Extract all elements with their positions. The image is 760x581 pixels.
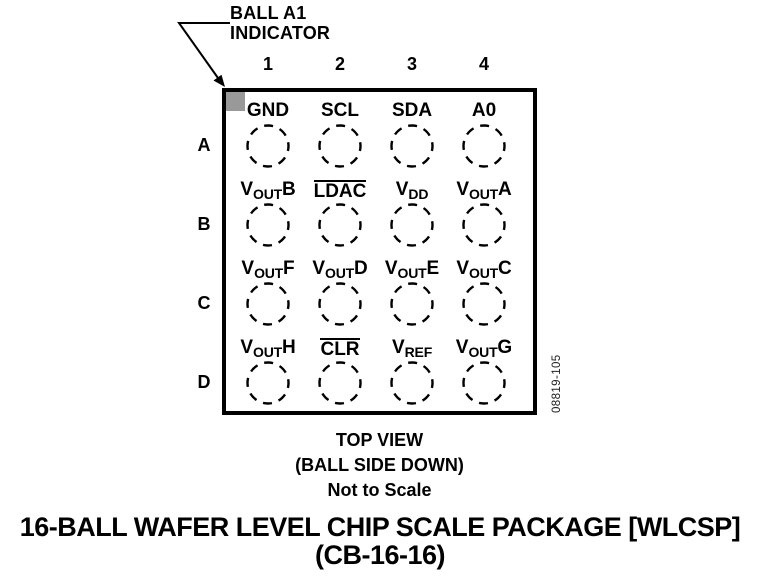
ball-cell-a2: SCL (304, 92, 376, 171)
pin-name-suffix: D (354, 258, 368, 279)
pin-label: VOUTA (456, 180, 511, 203)
overline-bar: CLR (320, 338, 359, 358)
pin-name-suffix: B (282, 179, 296, 200)
pin-label: A0 (472, 101, 496, 124)
pin-name: V (456, 179, 469, 200)
ball-cell-c2: VOUTD (304, 250, 376, 329)
pin-label: VOUTE (385, 259, 439, 282)
view-notes: TOP VIEW (BALL SIDE DOWN) Not to Scale (222, 428, 537, 503)
ball-cell-d4: VOUTG (448, 329, 520, 408)
pin-name: SCL (321, 100, 359, 121)
pin-name: V (240, 179, 253, 200)
row-label-b: B (192, 214, 216, 250)
scale-note: Not to Scale (222, 478, 537, 503)
pin-label: CLR (320, 338, 359, 361)
ball-pad-icon (462, 361, 506, 405)
ball-pad-icon (246, 203, 290, 247)
pin-label: SCL (321, 101, 359, 124)
pin-name-subscript: OUT (469, 186, 498, 202)
pin-label: VDD (396, 180, 429, 203)
ball-side-note: (BALL SIDE DOWN) (222, 453, 537, 478)
ball-cell-b4: VOUTA (448, 171, 520, 250)
pin-label: SDA (392, 101, 432, 124)
pin-name: LDAC (314, 181, 367, 202)
pin-name-subscript: OUT (398, 265, 427, 281)
ball-grid: GNDSCLSDAA0VOUTBLDACVDDVOUTAVOUTFVOUTDVO… (232, 92, 520, 408)
ball-cell-d1: VOUTH (232, 329, 304, 408)
pin-label: VOUTF (241, 259, 294, 282)
pin-name-subscript: OUT (469, 265, 498, 281)
pin-label: VOUTB (240, 180, 295, 203)
column-label-2: 2 (304, 54, 376, 75)
pin-name: V (241, 258, 254, 279)
ball-pad-icon (318, 203, 362, 247)
leader-arrow-icon (170, 14, 240, 94)
caption-line1: 16-BALL WAFER LEVEL CHIP SCALE PACKAGE [… (0, 513, 760, 541)
pin-name: V (312, 258, 325, 279)
ball-cell-b2: LDAC (304, 171, 376, 250)
overline-bar: LDAC (314, 180, 367, 200)
ball-a1-indicator-label: BALL A1 INDICATOR (230, 3, 330, 43)
pin-name-suffix: C (498, 258, 512, 279)
column-label-1: 1 (232, 54, 304, 75)
pin-label: GND (247, 101, 289, 124)
pin-name: V (396, 179, 409, 200)
ball-cell-a4: A0 (448, 92, 520, 171)
view-label: TOP VIEW (222, 428, 537, 453)
pin-label: VOUTG (456, 338, 512, 361)
pin-name: V (385, 258, 398, 279)
ball-pad-icon (246, 124, 290, 168)
ball-pad-icon (390, 282, 434, 326)
pin-name-subscript: DD (408, 186, 428, 202)
ball-pad-icon (246, 282, 290, 326)
pin-name-suffix: G (497, 337, 512, 358)
pin-name: A0 (472, 100, 496, 121)
pin-name-subscript: REF (405, 344, 432, 360)
pin-name: GND (247, 100, 289, 121)
package-outline: GNDSCLSDAA0VOUTBLDACVDDVOUTAVOUTFVOUTDVO… (222, 88, 537, 415)
pin-name-suffix: F (283, 258, 295, 279)
ball-pad-icon (246, 361, 290, 405)
ball-cell-b3: VDD (376, 171, 448, 250)
ball-pad-icon (390, 124, 434, 168)
ball-pad-icon (462, 282, 506, 326)
pin-label: VREF (392, 338, 432, 361)
ball-pad-icon (462, 203, 506, 247)
pin-label: LDAC (314, 180, 367, 203)
pin-name-suffix: H (282, 337, 296, 358)
pin-label: VOUTD (312, 259, 367, 282)
callout-line1: BALL A1 (230, 3, 330, 23)
ball-cell-d2: CLR (304, 329, 376, 408)
pin-name-subscript: OUT (325, 265, 354, 281)
pin-label: VOUTC (456, 259, 511, 282)
ball-cell-a3: SDA (376, 92, 448, 171)
ball-pad-icon (462, 124, 506, 168)
ball-cell-c1: VOUTF (232, 250, 304, 329)
ball-pad-icon (390, 203, 434, 247)
ball-pad-icon (390, 361, 434, 405)
column-headers: 1234 (232, 54, 520, 75)
pin-name: SDA (392, 100, 432, 121)
pin-name-suffix: A (498, 179, 512, 200)
column-label-4: 4 (448, 54, 520, 75)
callout-line2: INDICATOR (230, 23, 330, 43)
row-label-c: C (192, 293, 216, 329)
ball-cell-d3: VREF (376, 329, 448, 408)
pin-label: VOUTH (240, 338, 295, 361)
ball-pad-icon (318, 124, 362, 168)
ball-cell-c3: VOUTE (376, 250, 448, 329)
pin-name-subscript: OUT (253, 344, 282, 360)
row-label-d: D (192, 372, 216, 408)
package-caption: 16-BALL WAFER LEVEL CHIP SCALE PACKAGE [… (0, 513, 760, 569)
pin-name: CLR (320, 339, 359, 360)
pin-name: V (240, 337, 253, 358)
column-label-3: 3 (376, 54, 448, 75)
ball-cell-c4: VOUTC (448, 250, 520, 329)
pin-name-subscript: OUT (253, 186, 282, 202)
ball-cell-a1: GND (232, 92, 304, 171)
pin-name: V (392, 337, 405, 358)
pin-name: V (456, 258, 469, 279)
ball-pad-icon (318, 282, 362, 326)
ball-pad-icon (318, 361, 362, 405)
row-headers: ABCD (192, 92, 216, 408)
pin-name-suffix: E (426, 258, 439, 279)
row-label-a: A (192, 135, 216, 171)
pin-name-subscript: OUT (254, 265, 283, 281)
ball-cell-b1: VOUTB (232, 171, 304, 250)
caption-line2: (CB-16-16) (0, 541, 760, 569)
pin-name: V (456, 337, 469, 358)
wlcsp-pinout-diagram: BALL A1 INDICATOR 1234 ABCD GNDSCLSDAA0V… (0, 0, 760, 581)
pin-name-subscript: OUT (468, 344, 497, 360)
figure-number: 08819-105 (551, 343, 567, 413)
